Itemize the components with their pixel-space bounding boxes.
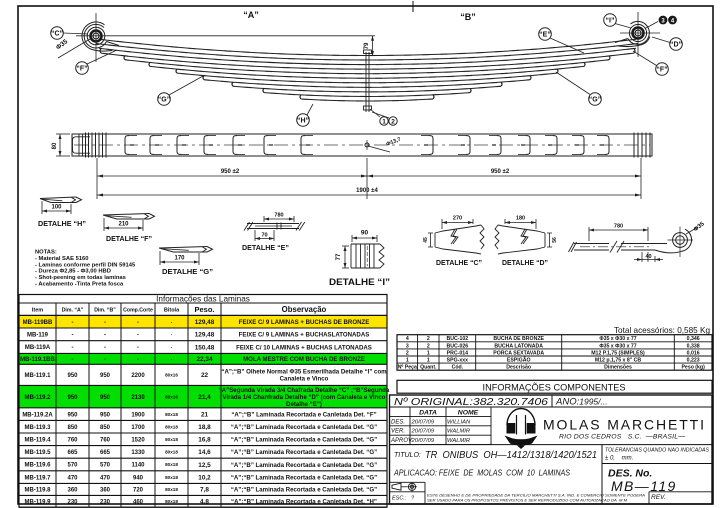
svg-text:950: 950 [67, 412, 78, 418]
svg-text:DES.: DES. [391, 419, 405, 425]
svg-text:0,016: 0,016 [687, 350, 700, 356]
svg-text:40: 40 [645, 254, 651, 260]
svg-text:4,8: 4,8 [200, 499, 209, 506]
svg-text:Nº Peça: Nº Peça [398, 365, 417, 371]
svg-text:-: - [137, 345, 139, 351]
svg-text:1: 1 [427, 357, 430, 363]
svg-text:TOLERANCIAS QUANDO NAO INDICAD: TOLERANCIAS QUANDO NAO INDICADAS [605, 448, 709, 454]
svg-text:FEIXE C/ 9 LAMINAS + BUCHAS DE: FEIXE C/ 9 LAMINAS + BUCHAS DE BRONZE [239, 319, 370, 326]
svg-text:TR ONIBUS OH—1412/1318/1420/: TR ONIBUS OH—1412/1318/1420/1521 [425, 450, 597, 461]
svg-text:- Acabamento -Tinta Preta fosc: - Acabamento -Tinta Preta fosca [35, 282, 124, 288]
svg-text:INFORMAÇÕES COMPONENTES: INFORMAÇÕES COMPONENTES [483, 382, 626, 392]
svg-text:-: - [137, 333, 139, 339]
svg-text:MB-119.1BB: MB-119.1BB [20, 357, 55, 363]
svg-text:780: 780 [614, 224, 623, 230]
svg-text:360: 360 [67, 488, 78, 494]
svg-text:Φ35 x Φ30 x 77: Φ35 x Φ30 x 77 [599, 336, 636, 342]
svg-text:BUCHA LATONADA: BUCHA LATONADA [494, 343, 543, 349]
svg-text:NOTAS:: NOTAS: [35, 250, 57, 256]
svg-text:80x16: 80x16 [165, 373, 178, 378]
svg-text:MB-119.2A: MB-119.2A [22, 412, 53, 418]
svg-text:MB-119BB: MB-119BB [23, 320, 53, 326]
svg-text:80x16: 80x16 [165, 394, 178, 399]
svg-text:-: - [72, 357, 74, 363]
svg-text:MB-119.8: MB-119.8 [24, 488, 51, 494]
svg-text:“D”: “D” [670, 42, 682, 49]
svg-text:Virada 1/4 Chanfrada Detalhe “: Virada 1/4 Chanfrada Detalhe “D” (com Ca… [222, 394, 385, 401]
svg-text:760: 760 [67, 437, 78, 443]
svg-text:“A”;“B” Olhete Normal Φ35 Esme: “A”;“B” Olhete Normal Φ35 Esmerilhada De… [221, 369, 387, 376]
svg-text:950: 950 [100, 412, 111, 418]
svg-text:470: 470 [67, 475, 78, 481]
svg-text:APROV: APROV [390, 438, 413, 444]
svg-text:“F”: “F” [656, 67, 667, 74]
svg-text:“A”;“B” Laminada Recortada e C: “A”;“B” Laminada Recortada e Canletada D… [231, 424, 377, 431]
svg-text:M12 P.1,75 (SIMPLES): M12 P.1,75 (SIMPLES) [591, 350, 645, 356]
svg-text:PRC-014: PRC-014 [447, 350, 468, 356]
svg-text:MB-119.1: MB-119.1 [24, 373, 51, 379]
svg-text:Observação: Observação [282, 305, 327, 314]
svg-text:MB-119.6: MB-119.6 [24, 463, 51, 469]
svg-text:950: 950 [67, 395, 78, 401]
svg-text:DETALHE “D”: DETALHE “D” [502, 258, 548, 267]
svg-text:“A”;“B” Laminada Recortada e C: “A”;“B” Laminada Recortada e Canletada D… [231, 437, 377, 444]
svg-text:BUC-026: BUC-026 [447, 343, 469, 349]
svg-text:BUCHA DE BRONZE: BUCHA DE BRONZE [493, 336, 544, 342]
svg-text:FEIXE C/ 9 LAMINAS + BUCHASLAT: FEIXE C/ 9 LAMINAS + BUCHASLATONADAS [239, 332, 370, 339]
svg-text:170: 170 [174, 256, 185, 262]
svg-text:ESPIGÃO: ESPIGÃO [507, 356, 531, 363]
svg-text:21: 21 [201, 411, 209, 418]
svg-text:Dimensões: Dimensões [604, 365, 632, 371]
svg-text:780: 780 [274, 213, 283, 219]
svg-text:950: 950 [100, 373, 111, 379]
svg-text:1140: 1140 [131, 463, 145, 469]
svg-text:20/07/09: 20/07/09 [411, 438, 435, 444]
svg-text:2200: 2200 [131, 373, 145, 379]
svg-text:1330: 1330 [131, 450, 145, 456]
svg-text:180: 180 [516, 216, 525, 222]
svg-text:80x18: 80x18 [165, 499, 178, 504]
svg-text:DETALHE “C”: DETALHE “C” [436, 258, 482, 267]
svg-text:230: 230 [67, 499, 78, 505]
svg-text:80x18: 80x18 [165, 437, 178, 442]
svg-text:Dim. “B”: Dim. “B” [94, 308, 116, 314]
svg-text:“H”: “H” [297, 118, 309, 125]
svg-text:ANO:1995/...: ANO:1995/... [555, 397, 608, 408]
svg-text:-: - [104, 357, 106, 363]
svg-text:470: 470 [100, 475, 111, 481]
svg-text:WALMIR: WALMIR [447, 438, 471, 444]
svg-text:Detalhe “E”): Detalhe “E”) [286, 401, 322, 408]
svg-text:230: 230 [100, 499, 111, 505]
svg-text:Item: Item [32, 308, 43, 314]
svg-text:“A”;“B” Laminada Recortada e C: “A”;“B” Laminada Recortada e Canletada D… [231, 411, 376, 418]
svg-text:850: 850 [67, 425, 78, 431]
svg-text:- Dureza Φ2,85 - Φ3,00 HBD: - Dureza Φ2,85 - Φ3,00 HBD [35, 269, 111, 275]
svg-text:-: - [104, 333, 106, 339]
svg-text:665: 665 [100, 450, 111, 456]
svg-text:MB-119.7: MB-119.7 [24, 475, 51, 481]
svg-text:0,346: 0,346 [687, 336, 700, 342]
svg-text:BUC-102: BUC-102 [447, 336, 469, 342]
svg-text:MB-119.2: MB-119.2 [24, 395, 51, 401]
svg-text:MB-119A: MB-119A [25, 345, 51, 351]
svg-text:2: 2 [427, 343, 430, 349]
svg-text:14,6: 14,6 [198, 449, 211, 456]
svg-text:850: 850 [100, 425, 111, 431]
svg-text:210: 210 [118, 222, 129, 228]
svg-text:570: 570 [67, 463, 78, 469]
svg-text:80x18: 80x18 [165, 412, 178, 417]
svg-text:NOME: NOME [458, 409, 479, 416]
svg-text:Comp.Corte: Comp.Corte [123, 308, 153, 314]
svg-text:“I”: “I” [606, 18, 615, 25]
svg-text:1520: 1520 [131, 437, 145, 443]
svg-text:Cód.: Cód. [452, 365, 464, 371]
svg-text:Dim. “A”: Dim. “A” [62, 308, 84, 314]
svg-text:DETALHE “E”: DETALHE “E” [242, 243, 289, 252]
svg-text:TITULO:: TITULO: [394, 452, 421, 459]
svg-text:80x18: 80x18 [165, 450, 178, 455]
svg-text:RIO DOS CEDROS S.C. —BRASIL: RIO DOS CEDROS S.C. —BRASIL— [559, 434, 685, 441]
svg-text:-: - [104, 320, 106, 326]
svg-text:Φ35 x Φ30 x 77: Φ35 x Φ30 x 77 [599, 343, 636, 349]
svg-text:MB-119.4: MB-119.4 [24, 437, 51, 443]
svg-text:Peso (kg): Peso (kg) [681, 365, 705, 371]
svg-text:“A”;“B” Laminada Recortada e C: “A”;“B” Laminada Recortada e Canletada D… [231, 487, 377, 494]
svg-text:18,8: 18,8 [198, 424, 211, 431]
svg-text:720: 720 [133, 488, 144, 494]
svg-text:REV.: REV. [651, 494, 666, 501]
svg-text:Canaleta e Vinco: Canaleta e Vinco [280, 376, 329, 383]
svg-text:270: 270 [453, 216, 462, 222]
svg-text:-: - [72, 320, 74, 326]
svg-text:MB-119.9: MB-119.9 [24, 499, 51, 505]
svg-text:DETALHE “H”: DETALHE “H” [38, 219, 86, 228]
svg-text:“B”: “B” [460, 12, 476, 22]
svg-text:“A”;“B” Laminada Recortada e C: “A”;“B” Laminada Recortada e Canletada D… [231, 462, 377, 469]
svg-text:“G”: “G” [589, 97, 601, 104]
svg-text:-: - [72, 345, 74, 351]
svg-text:20/07/09: 20/07/09 [411, 419, 435, 425]
svg-text:WALMIR: WALMIR [447, 429, 471, 435]
svg-text:56: 56 [552, 237, 558, 243]
svg-text:Peso.: Peso. [194, 305, 214, 314]
svg-text:M12 p.1,75 x 8" CB: M12 p.1,75 x 8" CB [595, 357, 642, 363]
svg-text:MB-119: MB-119 [27, 333, 49, 339]
svg-text:3: 3 [406, 343, 409, 349]
svg-text:ESC.: ?: ESC.: ? [392, 496, 415, 502]
svg-text:MB-119.5: MB-119.5 [24, 450, 51, 456]
svg-text:DETALHE “G”: DETALHE “G” [162, 267, 213, 276]
svg-text:Bitola: Bitola [164, 308, 180, 314]
svg-text:70: 70 [261, 233, 267, 239]
svg-text:- Material SAE 5160: - Material SAE 5160 [35, 256, 89, 262]
svg-text:570: 570 [100, 463, 111, 469]
svg-text:665: 665 [67, 450, 78, 456]
svg-text:DETALHE “I”: DETALHE “I” [329, 277, 390, 288]
svg-text:SPG-xxx: SPG-xxx [447, 357, 468, 363]
svg-text:-: - [137, 357, 139, 363]
svg-text:“A”Segunda Virada 3/4 Chafrada: “A”Segunda Virada 3/4 Chafrada Detalhe “… [219, 387, 390, 394]
svg-text:16,8: 16,8 [198, 437, 211, 444]
svg-text:79: 79 [364, 42, 370, 49]
svg-text:0,223: 0,223 [687, 357, 700, 363]
svg-text:90: 90 [361, 230, 369, 237]
svg-text:460: 460 [133, 499, 144, 505]
svg-text:45: 45 [423, 237, 429, 243]
svg-text:360: 360 [100, 488, 111, 494]
svg-text:80x18: 80x18 [165, 424, 178, 429]
svg-text:22: 22 [201, 372, 209, 379]
svg-text:Descrisão: Descrisão [506, 365, 531, 371]
svg-text:760: 760 [100, 437, 111, 443]
svg-text:VER.: VER. [391, 429, 405, 435]
svg-text:“G”: “G” [158, 97, 170, 104]
svg-text:MB-119.3: MB-119.3 [24, 425, 51, 431]
svg-text:1700: 1700 [131, 425, 145, 431]
svg-text:-: - [137, 320, 139, 326]
svg-text:950: 950 [100, 395, 111, 401]
svg-text:FEIXE C/ 10 LAMINAS + BUCHAS L: FEIXE C/ 10 LAMINAS + BUCHAS LATONADAS [236, 344, 372, 351]
svg-text:2: 2 [427, 336, 430, 342]
svg-text:1: 1 [382, 119, 386, 126]
svg-text:Nº ORIGINAL:382.320.7406: Nº ORIGINAL:382.320.7406 [394, 396, 548, 408]
svg-text:129,48: 129,48 [195, 319, 215, 326]
svg-text:± 0, mm.: ± 0, mm. [605, 456, 633, 462]
svg-text:1900: 1900 [131, 412, 145, 418]
svg-text:“C”: “C” [51, 31, 63, 38]
svg-text:1: 1 [406, 357, 409, 363]
svg-text:2: 2 [391, 119, 395, 126]
svg-text:“A”;“B” Laminada Recortada e C: “A”;“B” Laminada Recortada e Canletada D… [231, 449, 377, 456]
svg-text:80x18: 80x18 [165, 475, 178, 480]
svg-text:100: 100 [51, 205, 62, 211]
svg-text:0,338: 0,338 [687, 343, 700, 349]
svg-text:7,8: 7,8 [200, 487, 209, 494]
svg-text:DATA: DATA [419, 409, 437, 416]
svg-text:22,34: 22,34 [197, 356, 213, 363]
svg-text:80x18: 80x18 [165, 462, 178, 467]
svg-text:950 ±2: 950 ±2 [221, 169, 240, 175]
svg-text:2: 2 [406, 350, 409, 356]
svg-text:MOLAS MARCHETTI: MOLAS MARCHETTI [543, 417, 704, 433]
svg-text:“F”: “F” [76, 66, 87, 73]
svg-text:80x18: 80x18 [165, 487, 178, 492]
svg-text:“A”;“B” Laminada Recortada e C: “A”;“B” Laminada Recortada e Canletada D… [231, 499, 377, 506]
svg-text:“A”;“B” Laminada Recortada e C: “A”;“B” Laminada Recortada e Canletada D… [231, 474, 377, 481]
svg-text:80: 80 [52, 142, 58, 149]
svg-text:- Shot-peening em todas lamina: - Shot-peening em todas laminas [35, 275, 126, 281]
svg-text:PORCA SEXTAVADA: PORCA SEXTAVADA [493, 350, 544, 356]
svg-text:129,48: 129,48 [195, 332, 215, 339]
svg-text:-: - [104, 345, 106, 351]
svg-text:- Laminas conforme perfil DIN: - Laminas conforme perfil DIN 59145 [35, 262, 136, 268]
svg-text:12,5: 12,5 [198, 462, 211, 469]
svg-text:“A”: “A” [243, 10, 259, 20]
svg-text:940: 940 [133, 475, 144, 481]
svg-text:10,2: 10,2 [198, 474, 211, 481]
svg-text:Total acessórios: 0,585 Kg: Total acessórios: 0,585 Kg [614, 326, 710, 335]
svg-text:-: - [72, 333, 74, 339]
svg-text:Quant.: Quant. [420, 365, 437, 371]
svg-text:4: 4 [406, 336, 409, 342]
svg-text:950 ±2: 950 ±2 [491, 169, 510, 175]
svg-text:APLICACAO: FEIXE DE MOLAS C: APLICACAO: FEIXE DE MOLAS COM 10 LAMINAS [393, 469, 570, 478]
svg-text:DETALHE “F”: DETALHE “F” [106, 234, 152, 243]
svg-text:950: 950 [67, 373, 78, 379]
svg-text:1900 ±4: 1900 ±4 [356, 188, 378, 194]
svg-text:2130: 2130 [131, 395, 145, 401]
svg-text:1: 1 [427, 350, 430, 356]
svg-text:MOLA MESTRE COM BUCHA DE BRONZ: MOLA MESTRE COM BUCHA DE BRONZE [243, 356, 365, 363]
svg-text:21,4: 21,4 [198, 394, 211, 401]
svg-text:150,48: 150,48 [195, 344, 215, 351]
svg-text:20/07/09: 20/07/09 [411, 429, 435, 435]
svg-text:SER USADO PARA OS PROPOSITOS P: SER USADO PARA OS PROPOSITOS PREVISTOS E… [427, 498, 628, 503]
svg-text:Informações das Laminas: Informações das Laminas [156, 294, 250, 303]
svg-text:WILLIAN: WILLIAN [447, 419, 471, 425]
svg-text:“E”: “E” [539, 32, 551, 39]
svg-text:77: 77 [336, 253, 342, 260]
